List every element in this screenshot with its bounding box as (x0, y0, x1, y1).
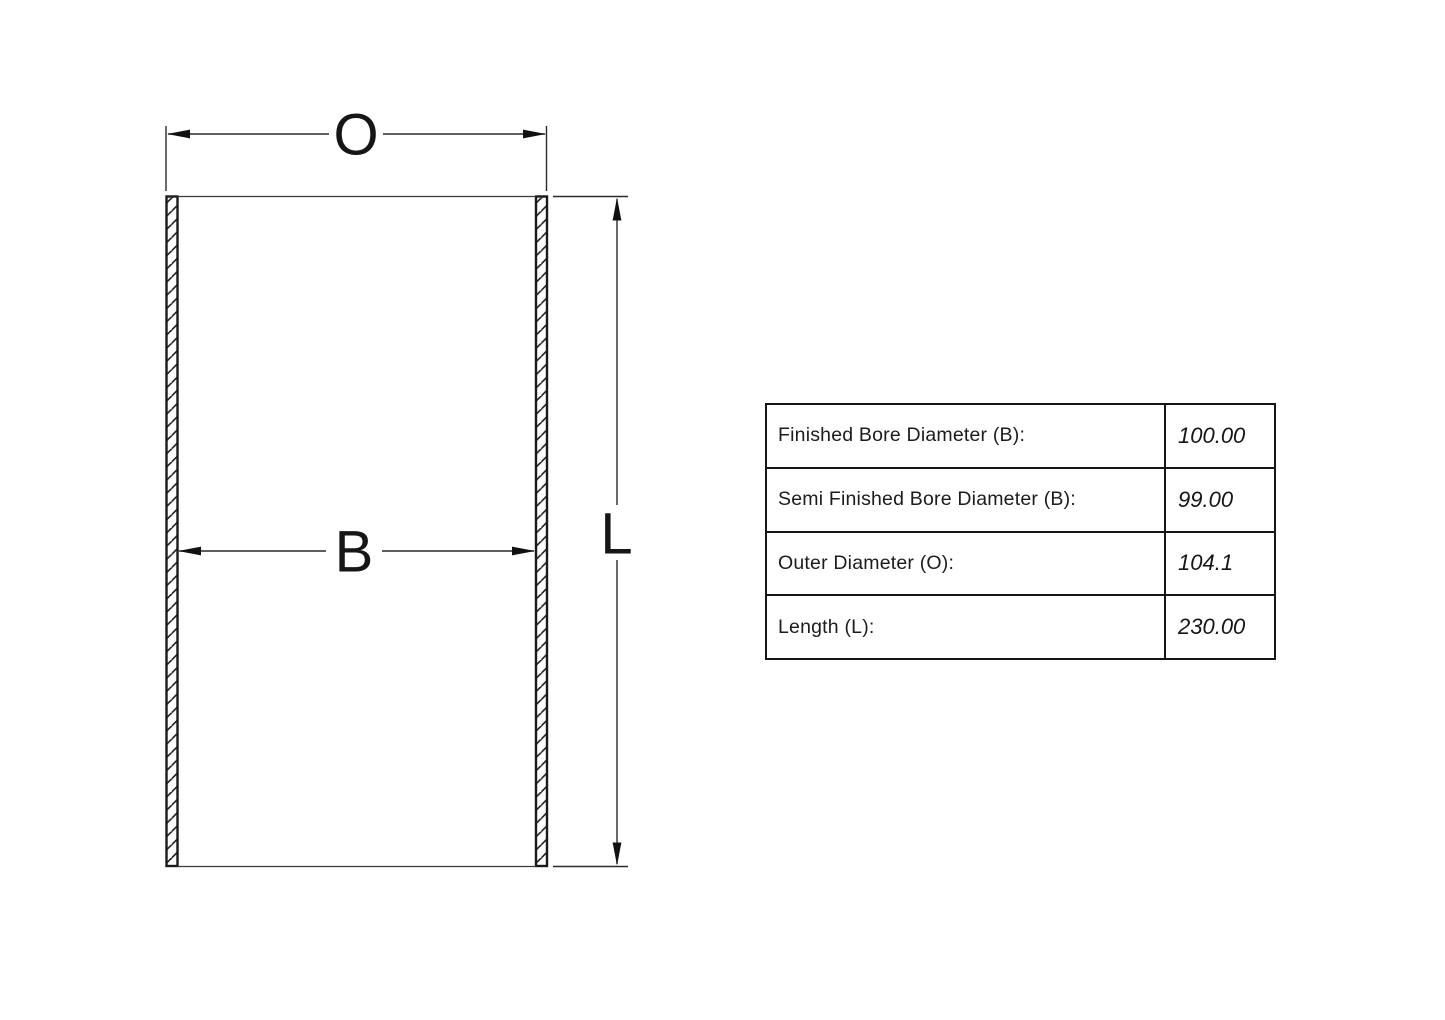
dim-label-bore: B (335, 520, 374, 585)
spec-label-length: Length (L): (767, 596, 1166, 658)
l-bottom-arrowhead-icon (613, 843, 622, 866)
b-right-arrowhead-icon (512, 547, 535, 556)
table-row: Outer Diameter (O): 104.1 (767, 531, 1274, 595)
page: O B L Finished Bore Diameter (B): 100.00… (0, 0, 1445, 1020)
b-left-arrowhead-icon (178, 547, 201, 556)
dim-label-length: L (600, 502, 632, 567)
spec-value-semi-finished-bore: 99.00 (1166, 469, 1274, 531)
table-row: Finished Bore Diameter (B): 100.00 (767, 405, 1274, 467)
spec-value-outer-diameter: 104.1 (1166, 533, 1274, 595)
liner-left-wall-section (167, 197, 178, 867)
spec-label-semi-finished-bore: Semi Finished Bore Diameter (B): (767, 469, 1166, 531)
table-row: Semi Finished Bore Diameter (B): 99.00 (767, 467, 1274, 531)
o-right-arrowhead-icon (523, 130, 546, 139)
spec-label-finished-bore: Finished Bore Diameter (B): (767, 405, 1166, 467)
spec-label-outer-diameter: Outer Diameter (O): (767, 533, 1166, 595)
l-top-arrowhead-icon (613, 198, 622, 221)
dim-label-outer-diameter: O (333, 103, 378, 168)
spec-value-finished-bore: 100.00 (1166, 405, 1274, 467)
o-left-arrowhead-icon (167, 130, 190, 139)
spec-table: Finished Bore Diameter (B): 100.00 Semi … (765, 403, 1276, 660)
table-row: Length (L): 230.00 (767, 594, 1274, 658)
spec-value-length: 230.00 (1166, 596, 1274, 658)
liner-right-wall-section (536, 197, 547, 867)
